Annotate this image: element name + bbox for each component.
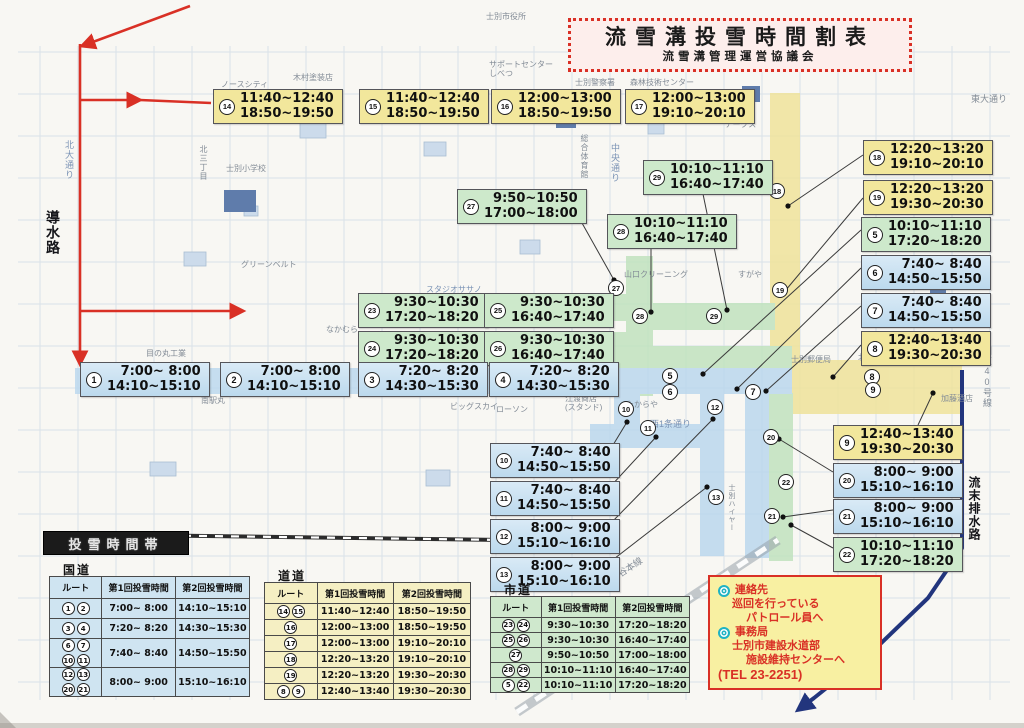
map-text-label: 西1条通り [650,420,691,429]
second-time-range: 14:50~15:50 [888,273,982,288]
route-cell: 522 [491,678,541,692]
map-text-label: 加藤酒店 [941,394,973,403]
map-text-label: グリーンベルト [241,260,297,269]
schedule-table-kokudo: ルート第1回投雪時間第2回投雪時間127:00~ 8:0014:10~15:10… [49,576,250,697]
route-number-badge: 20 [763,429,779,445]
second-time-cell: 19:30~20:30 [393,684,470,699]
second-time-range: 18:50~19:50 [386,107,480,122]
route-cell: 89 [265,684,317,699]
first-time-range: 9:30~10:30 [520,296,605,311]
page-subtitle: 流雪溝管理運営協議会 [663,50,818,64]
route-number-badge: 27 [509,649,522,662]
first-time-cell: 7:00~ 8:00 [101,599,174,618]
time-label-10: 107:40~ 8:4014:50~15:50 [490,443,620,478]
route-cell: 34 [50,619,101,638]
time-label-14: 1411:40~12:4018:50~19:50 [213,89,343,124]
table-row: 279:50~10:5017:00~18:00 [491,647,689,662]
route-number-badge: 10 [62,654,75,667]
second-time-cell: 19:10~20:10 [393,636,470,651]
map-text-label: ビッグスカイ [450,402,498,411]
time-ranges: 9:30~10:3017:20~18:20 [385,334,479,363]
second-time-cell: 16:40~17:40 [615,633,689,647]
time-label-28: 2810:10~11:1016:40~17:40 [607,214,737,249]
route-number-badge: 12 [496,529,512,545]
second-time-range: 17:20~18:20 [888,235,982,250]
time-label-5: 510:10~11:1017:20~18:20 [861,217,991,252]
second-time-range: 17:20~18:20 [860,555,954,570]
map-text-label: 士別警察署 [575,78,615,87]
title-box: 流雪溝投雪時間割表 流雪溝管理運営協議会 [568,18,912,72]
time-label-26: 269:30~10:3016:40~17:40 [484,331,614,366]
time-label-4: 47:20~ 8:2014:30~15:30 [489,362,619,397]
second-time-range: 15:10~16:10 [517,537,611,552]
table-row: 25269:30~10:3016:40~17:40 [491,632,689,647]
second-time-range: 17:20~18:20 [385,311,479,326]
time-label-3: 37:20~ 8:2014:30~15:30 [358,362,488,397]
snow-schedule-map-page: 流雪溝投雪時間割表 流雪溝管理運営協議会 投雪時間帯 連絡先巡回を行っているパト… [0,0,1024,728]
table-header-cell: ルート [265,583,317,603]
first-time-range: 11:40~12:40 [386,92,480,107]
first-time-cell: 7:40~ 8:40 [101,639,174,667]
second-time-range: 18:50~19:50 [240,107,334,122]
second-time-range: 19:10~20:10 [652,107,746,122]
table-header-cell: 第2回投雪時間 [175,577,249,598]
time-ranges: 7:40~ 8:4014:50~15:50 [517,446,611,475]
route-number-badge: 23 [364,303,380,319]
second-time-cell: 14:30~15:30 [175,619,249,638]
second-time-range: 14:30~15:30 [516,380,610,395]
route-badges: 2829 [497,664,535,677]
route-number-badge: 3 [62,622,75,635]
time-label-22: 2210:10~11:1017:20~18:20 [833,537,963,572]
route-badges: 671011 [57,639,95,667]
time-ranges: 12:00~13:0018:50~19:50 [518,92,612,121]
route-badges: 522 [497,679,535,692]
second-time-cell: 17:20~18:20 [615,618,689,632]
route-number-badge: 26 [517,634,530,647]
map-text-label: 流末排水路 [969,476,978,541]
first-time-cell: 7:20~ 8:20 [101,619,174,638]
time-label-24: 249:30~10:3017:20~18:20 [358,331,488,366]
time-ranges: 7:40~ 8:4014:50~15:50 [517,484,611,513]
time-label-1: 17:00~ 8:0014:10~15:10 [80,362,210,397]
second-time-range: 14:50~15:50 [517,499,611,514]
route-number-badge: 12 [707,399,723,415]
route-number-badge: 5 [502,679,515,692]
route-number-badge: 19 [284,669,297,682]
route-number-badge: 5 [662,368,678,384]
time-ranges: 7:00~ 8:0014:10~15:10 [107,365,201,394]
second-time-range: 14:50~15:50 [888,311,982,326]
first-time-range: 12:40~13:40 [860,428,954,443]
time-label-7: 77:40~ 8:4014:50~15:50 [861,293,991,328]
schedule-table-dodo: ルート第1回投雪時間第2回投雪時間141511:40~12:4018:50~19… [264,582,471,700]
map-text-label: 北大通り [64,140,73,180]
time-ranges: 10:10~11:1016:40~17:40 [670,163,764,192]
contact-text: 士別市建設水道部 [732,640,820,653]
scan-edge [0,712,1024,728]
time-ranges: 9:50~10:5017:00~18:00 [484,192,578,221]
route-badges: 19 [272,669,310,682]
first-time-range: 7:00~ 8:00 [121,365,201,380]
contact-line: (TEL 23-2251) [718,668,872,681]
bullseye-icon [718,585,730,597]
time-ranges: 11:40~12:4018:50~19:50 [240,92,334,121]
route-number-badge: 6 [662,384,678,400]
route-number-badge: 19 [772,282,788,298]
first-time-range: 12:40~13:40 [888,334,982,349]
map-text-label: サポートセンター しべつ [489,60,553,78]
page-title: 流雪溝投雪時間割表 [605,26,875,50]
route-number-badge: 1 [62,602,75,615]
time-ranges: 12:20~13:2019:10~20:10 [890,143,984,172]
table-header-cell: ルート [50,577,101,598]
first-time-range: 12:20~13:20 [890,143,984,158]
map-text-label: 導水路 [48,210,57,255]
second-time-cell: 18:50~19:50 [393,604,470,619]
time-ranges: 7:40~ 8:4014:50~15:50 [888,258,982,287]
route-marker-20: 20 [763,429,779,445]
table-header-cell: 第2回投雪時間 [393,583,470,603]
route-number-badge: 7 [867,303,883,319]
first-time-range: 7:20~ 8:20 [399,365,479,380]
route-number-badge: 19 [869,190,885,206]
route-number-badge: 4 [495,372,511,388]
time-label-6: 67:40~ 8:4014:50~15:50 [861,255,991,290]
first-time-range: 8:00~ 9:00 [874,466,954,481]
time-label-11: 117:40~ 8:4014:50~15:50 [490,481,620,516]
map-text-label: なかむら [326,325,358,334]
route-marker-6: 6 [662,384,678,400]
route-badges: 2324 [497,619,535,632]
building-blocks [150,86,946,494]
map-text-label: 南駅丸 [201,396,225,405]
time-label-8: 812:40~13:4019:30~20:30 [861,331,991,366]
route-number-badge: 15 [365,99,381,115]
first-time-cell: 11:40~12:40 [317,604,393,619]
route-marker-12: 12 [707,399,723,415]
first-time-cell: 9:30~10:30 [541,618,615,632]
route-number-badge: 24 [364,341,380,357]
route-number-badge: 6 [867,265,883,281]
second-time-range: 14:10~15:10 [247,380,341,395]
table-row: 141511:40~12:4018:50~19:50 [265,603,470,619]
route-number-badge: 28 [502,664,515,677]
first-time-range: 10:10~11:10 [888,220,982,235]
first-time-range: 9:30~10:30 [520,334,605,349]
route-badges: 27 [497,649,535,662]
time-ranges: 8:00~ 9:0015:10~16:10 [860,466,954,495]
table-row: 1612:00~13:0018:50~19:50 [265,619,470,635]
second-time-range: 16:40~17:40 [511,349,605,364]
route-number-badge: 15 [292,605,305,618]
map-text-label: 北三丁目 [199,145,208,181]
first-time-range: 8:00~ 9:00 [531,560,611,575]
map-text-label: ノースシティ [221,80,268,89]
route-number-badge: 21 [839,509,855,525]
map-text-label: 東大通り [971,95,1007,104]
time-label-18: 1812:20~13:2019:10~20:10 [863,140,993,175]
second-time-range: 14:30~15:30 [385,380,479,395]
route-number-badge: 22 [839,547,855,563]
table-row: 8912:40~13:4019:30~20:30 [265,683,470,699]
time-label-25: 259:30~10:3016:40~17:40 [484,293,614,328]
first-time-cell: 12:20~13:20 [317,652,393,667]
table-header-cell: ルート [491,597,541,617]
contact-text: パトロール員へ [746,612,823,625]
route-number-badge: 23 [502,619,515,632]
second-time-range: 19:30~20:30 [890,198,984,213]
contact-box: 連絡先巡回を行っているパトロール員へ事務局士別市建設水道部施設維持センターへ(T… [708,575,882,690]
first-time-range: 7:40~ 8:40 [902,258,982,273]
route-number-badge: 14 [277,605,290,618]
route-marker-10: 10 [618,401,634,417]
time-label-17: 1712:00~13:0019:10~20:10 [625,89,755,124]
second-time-range: 14:50~15:50 [517,461,611,476]
time-ranges: 7:20~ 8:2014:30~15:30 [385,365,479,394]
first-time-range: 7:40~ 8:40 [531,484,611,499]
route-number-badge: 4 [77,622,90,635]
second-time-range: 18:50~19:50 [518,107,612,122]
first-time-range: 9:30~10:30 [394,334,479,349]
route-cell: 1415 [265,604,317,619]
second-time-range: 14:10~15:10 [107,380,201,395]
route-number-badge: 1 [86,372,102,388]
route-marker-7: 7 [745,384,761,400]
table-row: 347:20~ 8:2014:30~15:30 [50,618,249,638]
table-header-cell: 第2回投雪時間 [615,597,689,617]
table-header-row: ルート第1回投雪時間第2回投雪時間 [265,583,470,603]
table-row: 52210:10~11:1017:20~18:20 [491,677,689,692]
table-row: 1712:00~13:0019:10~20:10 [265,635,470,651]
route-badges: 12132021 [57,668,95,696]
route-number-badge: 13 [77,668,90,681]
map-text-label: 士別小学校 [226,164,266,173]
first-time-range: 12:20~13:20 [890,183,984,198]
map-text-label: 士別ハイヤー [727,484,736,532]
second-time-range: 19:30~20:30 [860,443,954,458]
route-cell: 2829 [491,663,541,677]
map-text-label: 目の丸工業 [146,349,186,358]
time-ranges: 7:20~ 8:2014:30~15:30 [516,365,610,394]
first-time-range: 7:40~ 8:40 [902,296,982,311]
second-time-cell: 18:50~19:50 [393,620,470,635]
contact-text: 巡回を行っている [732,598,819,611]
route-marker-11: 11 [640,420,656,436]
time-label-23: 239:30~10:3017:20~18:20 [358,293,488,328]
first-time-range: 11:40~12:40 [240,92,334,107]
route-number-badge: 21 [764,508,780,524]
contact-text: 施設維持センターへ [746,654,845,667]
first-time-cell: 12:00~13:00 [317,636,393,651]
route-number-badge: 22 [517,679,530,692]
first-time-cell: 10:10~11:10 [541,663,615,677]
route-number-badge: 20 [839,473,855,489]
first-time-range: 7:20~ 8:20 [530,365,610,380]
contact-line: パトロール員へ [718,612,872,625]
time-ranges: 7:00~ 8:0014:10~15:10 [247,365,341,394]
second-time-range: 16:40~17:40 [511,311,605,326]
table-header-cell: 第1回投雪時間 [541,597,615,617]
route-number-badge: 22 [778,474,794,490]
route-number-badge: 6 [62,639,75,652]
table-row: 23249:30~10:3017:20~18:20 [491,617,689,632]
route-badges: 34 [57,622,95,635]
table-row: 282910:10~11:1016:40~17:40 [491,662,689,677]
route-number-badge: 16 [497,99,513,115]
first-time-cell: 12:40~13:40 [317,684,393,699]
second-time-range: 16:40~17:40 [634,232,728,247]
route-cell: 27 [491,648,541,662]
second-time-range: 17:20~18:20 [385,349,479,364]
route-number-badge: 16 [284,621,297,634]
route-number-badge: 11 [640,420,656,436]
map-text-label: 総合体育館 [580,134,589,179]
route-number-badge: 25 [490,303,506,319]
route-number-badge: 12 [62,668,75,681]
time-ranges: 9:30~10:3017:20~18:20 [385,296,479,325]
first-time-range: 10:10~11:10 [860,540,954,555]
route-marker-13: 13 [708,489,724,505]
first-time-range: 10:10~11:10 [670,163,764,178]
table-row: 1912:20~13:2019:30~20:30 [265,667,470,683]
contact-line: 施設維持センターへ [718,654,872,667]
map-text-label: 士別郵便局 [791,355,831,364]
schedule-table-shido: ルート第1回投雪時間第2回投雪時間23249:30~10:3017:20~18:… [490,596,690,693]
first-time-cell: 12:00~13:00 [317,620,393,635]
route-cell: 2526 [491,633,541,647]
table-header-row: ルート第1回投雪時間第2回投雪時間 [50,577,249,598]
route-number-badge: 9 [292,685,305,698]
route-marker-5: 5 [662,368,678,384]
route-marker-22: 22 [778,474,794,490]
red-route-line [80,6,243,364]
route-badges: 12 [57,602,95,615]
map-text-label: 士別市役所 [486,12,526,21]
route-cell: 2324 [491,618,541,632]
contact-line: 巡回を行っている [718,598,872,611]
second-time-cell: 17:00~18:00 [615,648,689,662]
first-time-cell: 10:10~11:10 [541,678,615,692]
second-time-range: 15:10~16:10 [860,481,954,496]
route-number-badge: 8 [867,341,883,357]
route-number-badge: 21 [77,683,90,696]
time-label-19: 1912:20~13:2019:30~20:30 [863,180,993,215]
route-number-badge: 11 [77,654,90,667]
route-badges: 18 [272,653,310,666]
route-badges: 89 [272,685,310,698]
time-ranges: 12:00~13:0019:10~20:10 [652,92,746,121]
route-cell: 19 [265,668,317,683]
first-time-range: 8:00~ 9:00 [874,502,954,517]
time-ranges: 12:20~13:2019:30~20:30 [890,183,984,212]
route-cell: 18 [265,652,317,667]
second-time-cell: 14:10~15:10 [175,599,249,618]
route-number-badge: 9 [839,435,855,451]
map-text-label: ローソン [496,405,528,414]
first-time-cell: 8:00~ 9:00 [101,668,174,696]
contact-text: (TEL 23-2251) [718,668,802,681]
map-text-label: 山口クリーニング [624,270,688,279]
route-number-badge: 29 [649,170,665,186]
route-number-badge: 2 [77,602,90,615]
bullseye-icon [718,627,730,639]
time-label-12: 128:00~ 9:0015:10~16:10 [490,519,620,554]
route-badges: 16 [272,621,310,634]
route-cell: 12132021 [50,668,101,696]
time-label-21: 218:00~ 9:0015:10~16:10 [833,499,963,534]
table-row: 127:00~ 8:0014:10~15:10 [50,598,249,618]
table-header-row: ルート第1回投雪時間第2回投雪時間 [491,597,689,617]
route-number-badge: 26 [490,341,506,357]
route-number-badge: 2 [226,372,242,388]
table-header-cell: 第1回投雪時間 [317,583,393,603]
route-marker-21: 21 [764,508,780,524]
route-number-badge: 14 [219,99,235,115]
map-text-label: すがや [738,270,762,279]
time-ranges: 12:40~13:4019:30~20:30 [860,428,954,457]
first-time-range: 7:40~ 8:40 [531,446,611,461]
table-row: 121320218:00~ 9:0015:10~16:10 [50,667,249,696]
first-time-range: 8:00~ 9:00 [531,522,611,537]
route-marker-19: 19 [772,282,788,298]
section-header: 投雪時間帯 [43,531,189,555]
contact-text: 事務局 [735,626,768,639]
map-text-label: 森林技術センター [630,78,694,87]
first-time-cell: 9:50~10:50 [541,648,615,662]
route-number-badge: 8 [277,685,290,698]
second-time-cell: 19:10~20:10 [393,652,470,667]
first-time-range: 12:00~13:00 [518,92,612,107]
contact-line: 連絡先 [718,584,872,597]
route-badges: 2526 [497,634,535,647]
time-label-15: 1511:40~12:4018:50~19:50 [359,89,489,124]
time-ranges: 10:10~11:1016:40~17:40 [634,217,728,246]
time-ranges: 8:00~ 9:0015:10~16:10 [517,522,611,551]
route-badges: 17 [272,637,310,650]
route-number-badge: 18 [284,653,297,666]
second-time-cell: 14:50~15:50 [175,639,249,667]
route-badges: 1415 [272,605,310,618]
second-time-range: 19:30~20:30 [888,349,982,364]
time-ranges: 8:00~ 9:0015:10~16:10 [860,502,954,531]
second-time-range: 19:10~20:10 [890,158,984,173]
route-cell: 671011 [50,639,101,667]
route-number-badge: 10 [496,453,512,469]
route-number-badge: 18 [869,150,885,166]
second-time-cell: 19:30~20:30 [393,668,470,683]
contact-line: 士別市建設水道部 [718,640,872,653]
route-marker-9: 9 [865,382,881,398]
map-text-label: 中央通り [610,143,619,183]
time-ranges: 7:40~ 8:4014:50~15:50 [888,296,982,325]
route-number-badge: 20 [62,683,75,696]
route-number-badge: 9 [865,382,881,398]
second-time-cell: 16:40~17:40 [615,663,689,677]
time-ranges: 9:30~10:3016:40~17:40 [511,334,605,363]
first-time-cell: 9:30~10:30 [541,633,615,647]
time-label-16: 1612:00~13:0018:50~19:50 [491,89,621,124]
time-ranges: 10:10~11:1017:20~18:20 [888,220,982,249]
second-time-cell: 15:10~16:10 [175,668,249,696]
time-label-9: 912:40~13:4019:30~20:30 [833,425,963,460]
route-number-badge: 28 [613,224,629,240]
route-number-badge: 10 [618,401,634,417]
time-ranges: 12:40~13:4019:30~20:30 [888,334,982,363]
first-time-range: 9:30~10:30 [394,296,479,311]
route-number-badge: 27 [463,199,479,215]
route-cell: 12 [50,599,101,618]
